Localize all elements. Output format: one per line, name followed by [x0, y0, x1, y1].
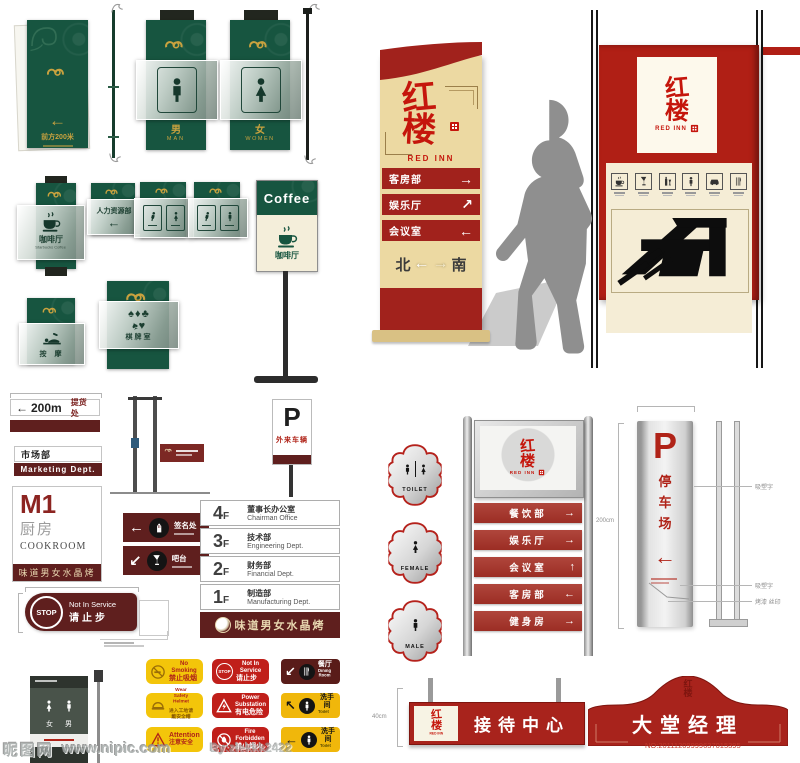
dining-direction-sign: ↙ 餐厅 Dining Room — [281, 659, 340, 684]
male-icon — [63, 698, 75, 714]
floor-dept-en: Manufacturing Dept. — [247, 599, 310, 606]
m1-code: M1 — [20, 491, 101, 517]
brand-en: RED INN — [655, 126, 687, 132]
dimension-line — [618, 423, 624, 629]
watermark-credit: By:zlekkk2422 — [210, 741, 292, 755]
pictogram-frame — [166, 205, 185, 231]
floor-dept-en: Chairman Office — [247, 515, 297, 522]
female-label: FEMALE — [388, 564, 442, 573]
person-silhouette — [465, 96, 620, 366]
callout-line — [680, 585, 752, 586]
pole-tick — [108, 136, 119, 138]
amenity-bar — [635, 173, 652, 196]
label-cn: 有电危险 — [235, 709, 263, 717]
label-en: Wear Safety Helmet — [169, 688, 193, 705]
floor-dept-cn: 财务部 — [247, 560, 271, 571]
arrow-downleft-icon: ↙ — [285, 664, 296, 680]
brand-seal — [691, 125, 698, 132]
directory-brand: 味道男女水晶烤 — [235, 617, 326, 633]
label-en: Power Substation — [235, 695, 266, 709]
knot-logo-icon — [164, 447, 174, 453]
toilet-ornate-sign: TOILET — [388, 443, 442, 507]
restroom-direction-sign: ↖ 洗手间 Toilet — [281, 693, 340, 718]
label-en: Toilet — [320, 744, 331, 749]
male-label: MALE — [388, 642, 442, 651]
knot-logo-icon — [41, 304, 61, 316]
coffee-stand-body: 咖啡厅 — [257, 215, 317, 271]
m1-sign: M1 厨房 COOKROOM 味道男女水晶烤 — [12, 486, 102, 582]
hand-icon-circle — [149, 518, 169, 538]
massage-label: 按 摩 — [40, 349, 65, 359]
label-cn: 餐厅 — [318, 661, 332, 669]
male-label: 男 — [65, 719, 72, 729]
floor-row: 2F 财务部 Financial Dept. — [200, 556, 340, 582]
stand-post — [463, 416, 472, 656]
label-en: Attention — [169, 732, 200, 740]
serial-number: NO:20111209999637015395 — [645, 741, 741, 750]
brand-char-2: 楼 — [430, 720, 442, 731]
frame-clamp — [131, 438, 139, 448]
person-icon — [686, 176, 696, 187]
service-pictograms — [30, 694, 88, 718]
frame-crossbar — [128, 397, 162, 400]
moon-logo-icon — [215, 617, 231, 633]
male-icon — [402, 462, 413, 477]
parking-char: 场 — [658, 513, 671, 532]
pole-cap — [303, 8, 312, 14]
stand-slat: 娱乐厅 → — [474, 530, 582, 550]
callout-line — [668, 601, 752, 602]
arrow-downleft-icon: ↙ — [129, 552, 142, 570]
frame-post — [153, 396, 157, 492]
stand-logo-panel: 红 楼 RED INN — [480, 426, 576, 490]
arrow-right-icon: → — [564, 534, 575, 546]
attendant-icon — [200, 209, 213, 224]
stand-slat: 会议室 ↑ — [474, 557, 582, 577]
floor-dept-en: Engineering Dept. — [247, 543, 303, 550]
card-suits-icon: ♠♦♣♠♥ — [128, 308, 150, 332]
visitor-sign-pole — [289, 465, 293, 497]
coffee-label-cn: 咖啡厅 — [39, 234, 63, 245]
reception-logo-box: 红 楼 RED INN — [414, 706, 458, 741]
car-icon — [709, 176, 720, 187]
dimension-line — [397, 688, 403, 747]
female-icon — [43, 698, 55, 714]
stand-top-panel: 红 楼 RED INN — [474, 420, 584, 498]
stop-sign: STOP Not In Service 请止步 — [25, 593, 137, 631]
stand-slat: 健身房 → — [474, 611, 582, 631]
label-en: Not In Service — [236, 661, 265, 675]
floor-num: 3 — [213, 531, 223, 551]
watermark-url: www.nipic.com — [62, 740, 171, 757]
pickup-sign: ← 200m 提货处 — [10, 399, 100, 416]
stop-en: Not In Service — [69, 600, 116, 609]
hr-glass-panel: 人力资源部 ← — [87, 199, 141, 235]
label-cn: 进入工地请戴安全帽 — [169, 709, 193, 720]
direction-sign-green: ← 前方200米 — [27, 20, 88, 148]
female-glass-panel — [220, 60, 302, 120]
female-label: 女 — [46, 719, 53, 729]
pictogram-frame — [220, 205, 239, 231]
parking-pylon: P 停 车 场 ← — [637, 421, 693, 627]
abstract-artwork — [611, 209, 749, 293]
chess-label: 棋牌室 — [126, 332, 153, 342]
goblet-icon — [638, 176, 649, 187]
floor-dept-cn: 制造部 — [247, 588, 271, 599]
coffee-sign-mount — [45, 267, 67, 276]
pylon-side-base — [709, 619, 748, 627]
pickup-distance: 200m — [31, 401, 62, 415]
pictogram-frame — [241, 67, 281, 113]
slat-label: 餐饮部 — [509, 506, 547, 520]
slat-label: 会议室 — [509, 560, 547, 574]
brand-char-2: 楼 — [683, 690, 692, 699]
arrow-left-icon: ← — [637, 544, 693, 570]
coffee-stand-header: Coffee — [257, 181, 317, 215]
pictogram-frame — [197, 205, 216, 231]
brand-seal — [539, 470, 544, 475]
arrow-left-icon: ← — [16, 401, 28, 415]
massage-glass-panel: 按 摩 — [19, 323, 85, 365]
floor-num: 4 — [213, 503, 223, 523]
board-rail-extension — [763, 47, 800, 55]
bottle-icon — [662, 176, 673, 187]
m1-brand-bar: 味道男女水晶烤 — [13, 564, 101, 581]
dimension-line — [637, 406, 695, 412]
goblet-icon — [150, 554, 163, 567]
floor-directory: 4F 董事长办公室 Chairman Office 3F 技术部 Enginee… — [200, 500, 340, 640]
pictogram-frame — [157, 67, 197, 113]
reception-label: 接待中心 — [460, 703, 584, 744]
bar-counter-plaque: ↙ 吧台 — [123, 546, 209, 575]
marketing-label-en: Marketing Dept. — [20, 465, 95, 474]
toilet-label: TOILET — [388, 485, 442, 494]
female-label-en: WOMEN — [230, 135, 290, 143]
slat-label: 客房部 — [509, 587, 547, 601]
person-icon — [302, 700, 312, 712]
callout-line — [694, 486, 752, 487]
watermark-site: 昵图网 — [3, 739, 54, 760]
callout-label: 吸塑字 — [755, 581, 773, 590]
direction-label: 前方200米 — [27, 132, 88, 142]
brand-char-2: 楼 — [520, 453, 536, 468]
female-icon — [418, 462, 429, 477]
knot-logo-icon — [104, 186, 122, 197]
lobby-brand-logo: 红 楼 — [672, 681, 704, 698]
slim-pole-cap — [94, 670, 103, 682]
not-in-service-sign: STOP Not In Service 请止步 — [212, 659, 269, 684]
male-icon — [409, 616, 422, 634]
board-info-panel — [606, 163, 752, 333]
parking-code: P — [637, 425, 693, 467]
stop-cn: 请止步 — [69, 609, 108, 624]
brand-logo: 红 楼 — [665, 77, 689, 123]
directory-brand-bar: 味道男女水晶烤 — [200, 612, 340, 638]
arrow-left-icon: ← — [414, 255, 430, 273]
floor-suffix: F — [223, 539, 229, 550]
bar-counter-label: 吧台 — [172, 553, 187, 564]
arrow-right-icon: → — [433, 255, 449, 273]
brand-char-2: 楼 — [664, 99, 689, 123]
callout-label: 吸塑字 — [755, 482, 773, 491]
cutlery-icon-circle — [299, 664, 315, 680]
signage-design-sheet: ← 前方200米 男 MAN 女 WOMEN 咖啡 — [0, 0, 800, 763]
pickup-dest: 提货处 — [71, 397, 94, 419]
floor-suffix: F — [223, 511, 229, 522]
floor-dept-en: Financial Dept. — [247, 571, 294, 578]
knot-logo-icon — [208, 185, 226, 196]
arrow-left-icon: ← — [129, 519, 144, 536]
arrow-up-icon: ↑ — [570, 561, 576, 573]
stop-circle: STOP — [30, 596, 63, 629]
female-ornate-sign: FEMALE — [388, 521, 442, 585]
m1-label-cn: 厨房 — [20, 518, 101, 539]
coffee-stand-sign: Coffee 咖啡厅 — [256, 180, 318, 272]
floor-suffix: F — [223, 567, 229, 578]
parking-char: 停 — [658, 471, 671, 490]
slat-label: 娱乐厅 — [509, 533, 547, 547]
amenity-pet — [682, 173, 699, 196]
cutlery-icon — [301, 666, 312, 677]
marketing-label-cn: 市场部 — [21, 448, 51, 461]
amenity-dining — [730, 173, 747, 196]
label-en: Toilet — [318, 710, 329, 715]
frame-base-line — [110, 492, 210, 494]
visitor-bar — [273, 455, 311, 464]
brand-en: RED INN — [510, 470, 536, 475]
pickup-sign-bar — [10, 420, 100, 432]
floor-row: 1F 制造部 Manufacturing Dept. — [200, 584, 340, 610]
person-icon — [304, 734, 314, 746]
pylon-row-label: 娱乐厅 — [389, 197, 422, 212]
left-arrow-icon: ← — [27, 112, 88, 130]
arrow-right-icon: → — [564, 615, 575, 627]
brand-logo: 红 楼 — [402, 82, 436, 147]
m1-brand: 味道男女水晶烤 — [18, 566, 95, 579]
male-label-en: MAN — [146, 135, 206, 143]
spiral-ornament-icon — [29, 22, 59, 52]
female-icon — [409, 538, 422, 556]
mount-squiggle-icon — [108, 152, 124, 166]
pylon-side-view — [734, 421, 740, 621]
female-icon — [248, 75, 274, 105]
floor-row: 4F 董事长办公室 Chairman Office — [200, 500, 340, 526]
high-voltage-icon — [216, 698, 232, 714]
coffee-cup-icon — [275, 225, 299, 249]
coffee-glass-panel: 咖啡厅 Starbucks Coffee — [17, 205, 85, 260]
parking-char: 车 — [658, 492, 671, 511]
stand-pole — [283, 271, 288, 377]
amenity-wine — [659, 173, 676, 196]
signature-plaque: ← 签名处 — [123, 513, 209, 542]
label-en: No Smoking — [169, 661, 199, 675]
stand-base — [254, 376, 318, 383]
red-board-sign: 红 楼 RED INN — [599, 45, 759, 300]
no-smoking-icon — [150, 664, 166, 680]
north-label: 北 — [395, 254, 410, 275]
dimension-line — [25, 587, 139, 592]
visitor-parking-sign: P 外来车辆 — [272, 399, 312, 465]
direction-subline — [43, 145, 73, 147]
pylon-row-label: 客房部 — [389, 171, 422, 186]
cutlery-icon — [733, 176, 744, 187]
visitor-code: P — [273, 400, 311, 434]
floor-dept-cn: 技术部 — [247, 532, 271, 543]
signature-label: 签名处 — [174, 520, 197, 531]
label-cn: 请止步 — [236, 675, 257, 683]
male-glass-panel — [136, 60, 218, 120]
floor-num: 2 — [213, 559, 223, 579]
brand-char-2: 楼 — [401, 113, 437, 147]
parking-dim-label: 200cm — [596, 518, 614, 524]
male-ornate-sign: MALE — [388, 599, 442, 663]
marketing-sign-bar: Marketing Dept. — [14, 463, 102, 476]
pole-tick — [108, 86, 119, 88]
goblet-icon-circle — [147, 551, 167, 571]
service-labels: 女 男 — [30, 719, 88, 729]
reception-dim-label: 40cm — [372, 714, 387, 720]
knot-logo-icon — [45, 64, 70, 79]
arrow-left-icon: ← — [564, 588, 575, 600]
pylon-row-label: 会议室 — [389, 223, 422, 238]
service-top-strip — [30, 676, 88, 688]
board-logo-panel: 红 楼 RED INN — [637, 57, 717, 153]
visitor-label: 外来车辆 — [273, 434, 311, 446]
safety-helmet-sign: Wear Safety Helmet 进入工地请戴安全帽 — [146, 693, 203, 718]
label-cn: 洗手间 — [318, 694, 336, 710]
parking-label-vertical: 停 车 场 — [637, 471, 693, 532]
stand-slat: 客房部 ← — [474, 584, 582, 604]
knot-logo-icon — [163, 36, 189, 52]
stand-post — [584, 416, 593, 656]
m1-label-en: COOKROOM — [20, 541, 101, 552]
person-icon-circle — [299, 698, 315, 714]
sign-pole — [306, 8, 309, 160]
coffee-stand-label: 咖啡厅 — [275, 250, 299, 261]
spec-label-line — [104, 645, 144, 647]
label-cn: 注意安全 — [169, 740, 193, 747]
floor-dept-cn: 董事长办公室 — [247, 504, 295, 515]
male-label-cn: 男 — [146, 122, 206, 134]
reception-sign: 红 楼 RED INN 接待中心 — [409, 702, 585, 745]
female-icon — [171, 210, 181, 223]
floor-num: 1 — [213, 587, 223, 607]
amenity-car — [706, 173, 723, 196]
no-smoking-sign: No Smoking 禁止吸烟 — [146, 659, 203, 684]
stop-circle: STOP — [216, 663, 233, 680]
arrow-right-icon: → — [564, 507, 575, 519]
pylon-side-view — [716, 421, 722, 621]
female-label-cn: 女 — [230, 122, 290, 134]
left-arrow-icon: ← — [108, 216, 121, 229]
stand-slat: 餐饮部 → — [474, 503, 582, 523]
label-en: Dining Room — [318, 669, 331, 679]
mount-squiggle-icon — [302, 154, 320, 168]
dimension-line — [18, 593, 23, 633]
brand-seal — [450, 122, 459, 131]
power-substation-sign: Power Substation 有电危险 — [212, 693, 269, 718]
pictogram-frame — [143, 205, 162, 231]
hr-label: 人力资源部 — [97, 206, 132, 216]
male-icon — [164, 75, 190, 105]
person-icon-circle — [301, 732, 317, 748]
hanging-rod — [556, 678, 561, 704]
small-red-plate — [160, 444, 204, 462]
marketing-sign: 市场部 — [14, 446, 102, 462]
callout-label: 烤漆 丝印 — [755, 597, 781, 606]
label-cn: 洗手间 — [320, 728, 336, 744]
mount-squiggle-icon — [110, 0, 126, 14]
brand-en: RED INN — [429, 732, 443, 735]
locker-glass-panel — [134, 198, 194, 238]
lobby-manager-sign: 红 楼 大堂经理 — [588, 676, 788, 746]
slat-label: 健身房 — [509, 614, 547, 628]
hanging-rod — [428, 678, 433, 704]
coffee-cup-icon — [40, 211, 62, 233]
helmet-icon — [150, 698, 166, 714]
coffee-label-en: Starbucks Coffee — [36, 245, 67, 250]
spec-label-line — [104, 642, 134, 644]
brand-logo: 红 楼 — [520, 439, 535, 468]
arrow-upleft-icon: ↖ — [285, 698, 296, 714]
knot-logo-icon — [247, 36, 273, 52]
male-icon — [225, 210, 235, 223]
floor-suffix: F — [223, 595, 229, 606]
label-cn: 禁止吸烟 — [169, 675, 197, 683]
chess-glass-panel: ♠♦♣♠♥ 棋牌室 — [99, 301, 179, 349]
knot-logo-icon — [154, 185, 172, 196]
lobby-label: 大堂经理 — [588, 708, 788, 738]
floor-row: 3F 技术部 Engineering Dept. — [200, 528, 340, 554]
pylon-wave-cap — [380, 42, 482, 82]
stop-word: STOP — [36, 608, 56, 617]
hand-icon — [153, 521, 166, 534]
massage-icon — [40, 329, 64, 349]
knot-logo-icon — [46, 188, 66, 200]
spec-leader — [100, 631, 168, 640]
attendant-icon — [146, 209, 159, 224]
locker-glass-panel — [188, 198, 248, 238]
amenity-icon-row — [611, 173, 747, 196]
